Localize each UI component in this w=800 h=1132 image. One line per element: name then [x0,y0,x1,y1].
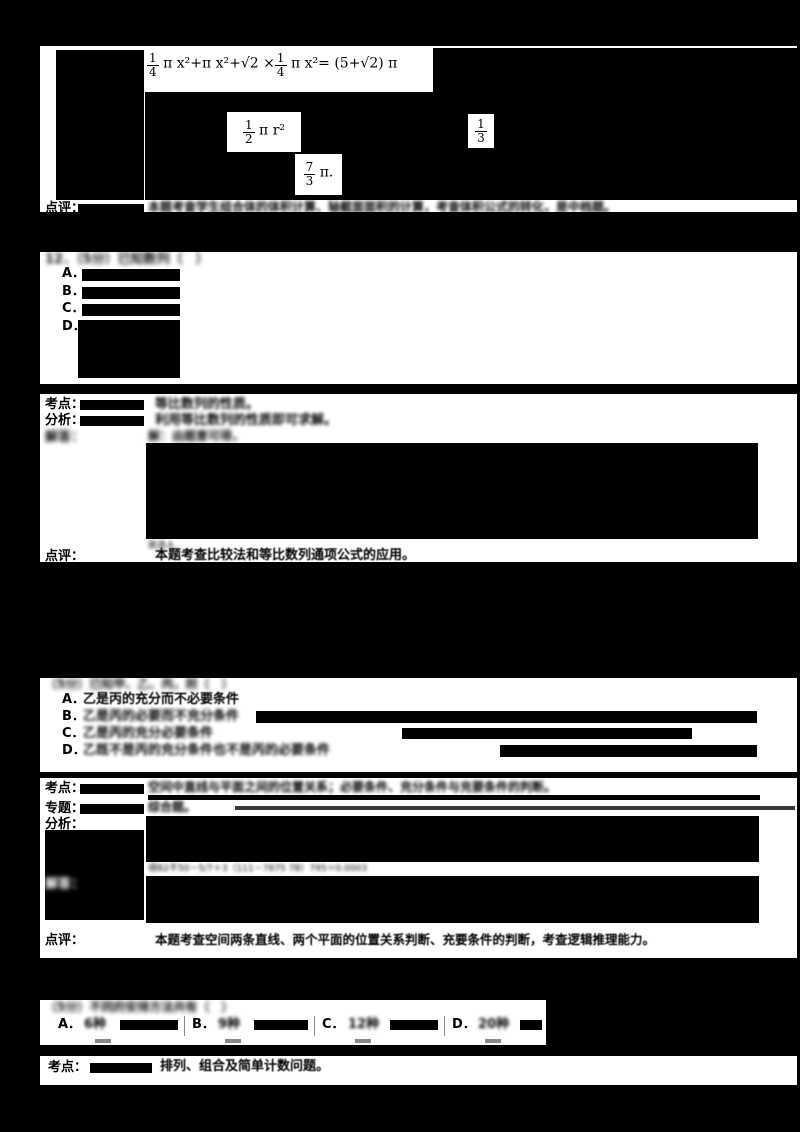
counting-question-header: （5分）不同的安排方法共有（ ） [45,1001,233,1015]
zhuanti-label: 专题： [45,802,84,817]
counting-question-block: （5分）不同的安排方法共有（ ） A． 6种 B． 9种 C． 12种 D． 2… [40,1000,546,1045]
fraction-one-quarter: 14 [147,52,159,78]
zhuanti-text: 综合题。 [148,801,196,815]
redaction-bar [433,48,797,94]
redaction-bar [254,1020,308,1030]
redaction-option-c [82,304,180,316]
redaction-bar [120,1020,178,1030]
option-b-text: 乙是丙的必要而不充分条件 [83,710,239,725]
option-c-value: 12种 [348,1018,379,1033]
logic-question-header: （5分）已知甲、乙、丙，则（ ） [45,678,233,692]
smudge [355,1039,371,1043]
seven-thirds-pi-patch: 73 π. [295,154,342,195]
redaction-bar [80,416,144,426]
option-a-letter: A． [62,693,85,708]
redaction-analysis-body [146,816,759,862]
redaction-option-d-fraction [78,320,180,378]
option-c-letter: C． [62,727,85,742]
equation-middle: π x²+π x²+√2 × [159,56,275,72]
solution-12-block: 考点： 等比数列的性质。 分析： 利用等比数列的性质即可求解。 解答： 解：由题… [40,394,797,562]
kaodian-label: 考点： [48,1061,87,1076]
redaction-option-b [256,711,757,723]
jieda-label: 解答： [45,878,84,893]
kaodian-text: 排列、组合及简单计数问题。 [160,1060,329,1075]
option-d-letter: D． [452,1018,476,1033]
dianping-label: 点评： [45,550,84,565]
scanned-exam-page: 14 π x²+π x²+√2 ×14 π x²= (5+√2) π 12 π … [0,0,800,1132]
logic-question-block: （5分）已知甲、乙、丙，则（ ） A． 乙是丙的充分而不必要条件 B． 乙是丙的… [40,678,797,772]
redaction-label-column [45,830,144,920]
kaodian-label: 考点： [45,782,84,797]
option-a-value: 6种 [84,1018,106,1033]
equation-tail: π x²= (5+√2) π [287,56,398,72]
redaction-bar [80,784,144,794]
option-a-letter: A． [58,1018,81,1033]
redaction-bar [520,1020,542,1030]
fraction-one-quarter-2: 14 [275,52,287,78]
option-separator [184,1016,185,1036]
redaction-option-b [82,287,180,299]
volume-solution-block: 14 π x²+π x²+√2 ×14 π x²= (5+√2) π 12 π … [40,46,797,212]
fenxi-text: 利用等比数列的性质即可求解。 [155,414,337,429]
analysis-fragment: 得B2不50－5/7＋3（111－7875 7B）795＝0.0003 [148,864,367,874]
option-d-text: 乙既不是丙的充分条件也不是丙的必要条件 [83,744,330,759]
smudge [95,1039,111,1043]
option-b-letter: B． [192,1018,215,1033]
redaction-bar [90,1063,152,1073]
redaction-solution-body [146,443,758,539]
option-b-value: 9种 [218,1018,240,1033]
redaction-bar [78,204,144,214]
one-third-fraction: 13 [475,118,487,144]
redaction-figure [56,50,144,200]
redaction-solution-body [146,876,759,923]
smudge [485,1039,501,1043]
redaction-option-d [500,745,757,757]
option-a-text: 乙是丙的充分而不必要条件 [83,693,239,708]
redaction-bar [80,400,144,410]
option-separator [444,1016,445,1036]
jieda-label: 解答： [45,431,84,446]
kaodian-text: 空间中直线与平面之间的位置关系；必要条件、充分条件与充要条件的判断。 [148,781,556,795]
redaction-thin-line [148,795,760,800]
kaodian-text: 等比数列的性质。 [155,398,259,413]
question-12-block: 12．（5分）已知数列（ ） A． B． C． D． [40,252,797,384]
option-c-letter: C． [322,1018,345,1033]
half-pi-r-squared: 12 π r² [243,119,285,145]
dianping-text: 本题考查空间两条直线、两个平面的位置关系判断、充要条件的判断，考查逻辑推理能力。 [155,933,655,947]
option-c-text: 乙是丙的充分必要条件 [83,727,213,742]
half-pi-r-squared-patch: 12 π r² [227,112,301,152]
counting-kaodian-block: 考点： 排列、组合及简单计数问题。 [40,1056,797,1085]
redaction-bar [80,804,144,814]
smeared-line [235,806,795,810]
dianping-text: 本题考查比较法和等比数列通项公式的应用。 [155,549,415,564]
jieda-first-line: 解：由题意可得， [148,430,244,444]
option-b-letter: B． [62,710,85,725]
logic-solution-block: 考点： 空间中直线与平面之间的位置关系；必要条件、充分条件与充要条件的判断。 专… [40,778,797,958]
one-third-patch: 13 [468,114,494,148]
fenxi-label: 分析： [45,414,84,429]
kaodian-label: 考点： [45,398,84,413]
volume-equation: 14 π x²+π x²+√2 ×14 π x²= (5+√2) π [147,52,397,78]
seven-thirds-pi: 73 π. [304,161,334,187]
redaction-option-a [82,269,180,281]
option-d-value: 20种 [478,1018,509,1033]
smudge [225,1039,241,1043]
redaction-bar [390,1020,438,1030]
redaction-option-c [402,728,692,739]
redaction-band: 12 π r² 13 73 π. [145,92,797,200]
dianping-label: 点评： [45,934,84,949]
option-separator [314,1016,315,1036]
comment-text: 本题考查学生组合体的体积计算、轴截面面积的计算，考查体积公式的转化，是中档题。 [148,201,616,215]
